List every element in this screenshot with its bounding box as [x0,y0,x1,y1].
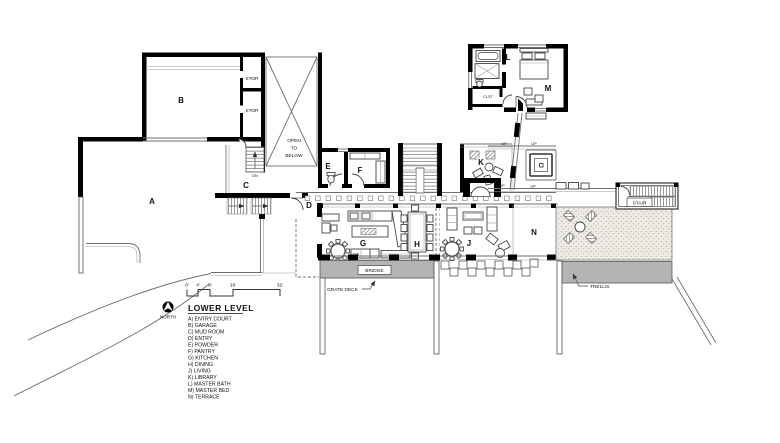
stor-label-1: STOR [245,76,259,82]
legend-item: A) ENTRY COURT [188,317,233,323]
room-label-e: E [325,162,331,171]
ramp-path: UP UP UP UP [488,98,616,192]
room-label-c: C [243,181,249,190]
room-label-j: J [467,239,471,248]
up-label-3: UP [499,184,505,188]
open-below-line1: OPEN [287,138,301,144]
up-label-1: UP [501,142,507,146]
room-label-k: K [478,158,484,167]
up-label-4: UP [530,185,536,189]
legend-item: G) KITCHEN [188,356,218,362]
room-label-g: G [360,239,366,248]
bridge: BRIDGE [320,261,434,279]
stepping-pavers [441,259,538,276]
legend-item: K) LIBRARY [188,375,217,381]
legend-title: LOWER LEVEL [188,303,254,313]
north-arrow: NORTH [160,302,176,320]
room-label-f: F [358,166,363,175]
fire-feature [526,150,556,180]
trellis-label: TRELLIS [590,284,609,290]
terrace: N [513,207,672,260]
legend-item: M) MASTER BED [188,388,229,394]
room-label-b: B [178,96,184,105]
room-label-m: M [545,84,552,93]
scale-tick-3: 16' [230,283,236,289]
open-below-line3: BELOW [285,153,303,159]
legend-item: D) ENTRY [188,336,213,342]
pantry: F [350,153,385,183]
mud-room: DN C [226,139,264,193]
room-label-h: H [414,240,420,249]
entry-court: A [14,137,319,396]
up-label-2: UP [531,142,537,146]
scale-tick-0: 0' [185,283,189,289]
scale-tick-2: 8' [208,283,212,289]
dn-label: DN [252,174,258,178]
legend-item: H) DINING [188,362,213,368]
bridge-label: BRIDGE [365,268,383,274]
room-label-n: N [531,228,537,237]
scale-tick-4: 32' [277,283,283,289]
north-label: NORTH [160,315,176,320]
fireplace [463,178,501,197]
stor-label-2: STOR [245,108,259,114]
legend: LOWER LEVEL A) ENTRY COURT B) GARAGE C) … [188,303,254,401]
open-to-below: OPEN TO BELOW [261,53,322,173]
stair-label: STAIR [633,201,647,207]
dining: H [401,205,440,259]
legend-item: C) MUD ROOM [188,330,224,336]
gallery [296,193,558,209]
terrace-stair: STAIR [616,183,678,209]
legend-item: B) GARAGE [188,323,217,329]
room-label-d: D [306,201,312,210]
floor-plan-drawing: A STOR STOR B OPEN TO BELOW DN C D [0,0,780,443]
room-label-l: L [506,53,511,62]
legend-item: N) TERRACE [188,395,220,401]
master-bed: M [520,49,552,106]
main-stair [398,143,442,196]
grate-deck-label: GRATE DECK [327,287,359,293]
scale-tick-1: 4' [196,283,200,289]
scale-bar: 0' 4' 8' 16' 32' [185,283,283,297]
legend-item: J) LIVING [188,369,211,375]
legend-item: E) POWDER [188,343,218,349]
legend-item: L) MASTER BATH [188,382,231,388]
south-wall [318,255,558,261]
open-below-line2: TO [291,146,298,152]
floor-plan-sheet: A STOR STOR B OPEN TO BELOW DN C D [0,0,780,443]
garage-wing: STOR STOR B [79,53,264,142]
entry-area: D [215,193,312,214]
room-label-a: A [149,197,155,206]
closet-label: CLST [483,95,493,99]
legend-item: F) PANTRY [188,349,215,355]
trellis: TRELLIS [562,262,716,346]
